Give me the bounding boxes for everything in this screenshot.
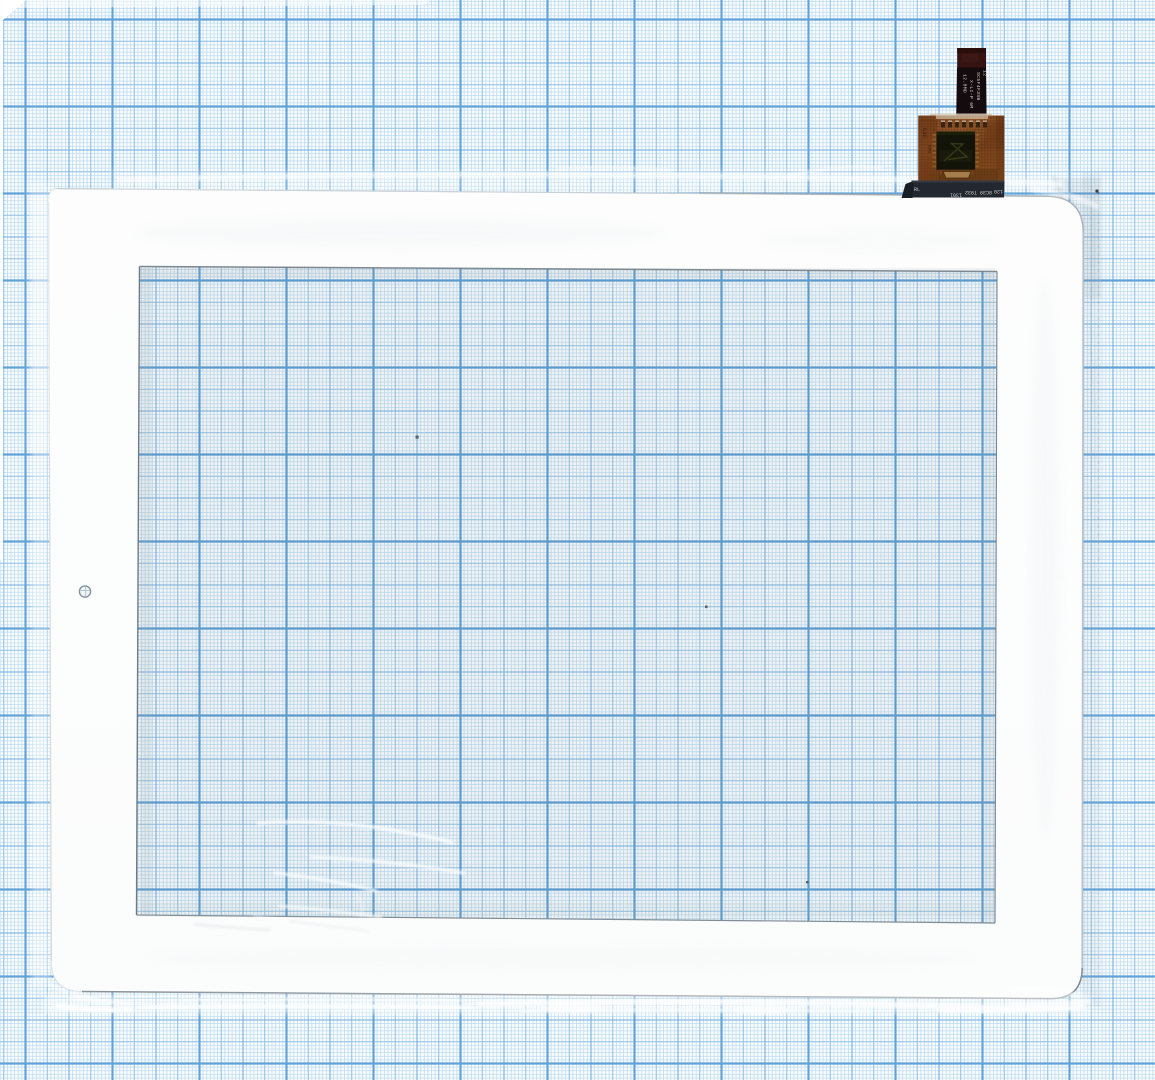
svg-text:SC5F4F3SB: SC5F4F3SB — [975, 72, 981, 101]
svg-text:C3C: C3C — [921, 128, 928, 139]
svg-text:120: 120 — [994, 188, 1003, 194]
svg-text:12.8MD: 12.8MD — [962, 74, 968, 93]
svg-text:KPD: KPD — [926, 145, 932, 153]
svg-text:8C39 T932: 8C39 T932 — [965, 189, 992, 195]
svg-text:RL: RL — [914, 187, 920, 193]
svg-text:1301: 1301 — [950, 192, 962, 198]
svg-text:X-LI-P 6M: X-LI-P 6M — [968, 80, 974, 109]
svg-text:12: 12 — [982, 70, 988, 76]
